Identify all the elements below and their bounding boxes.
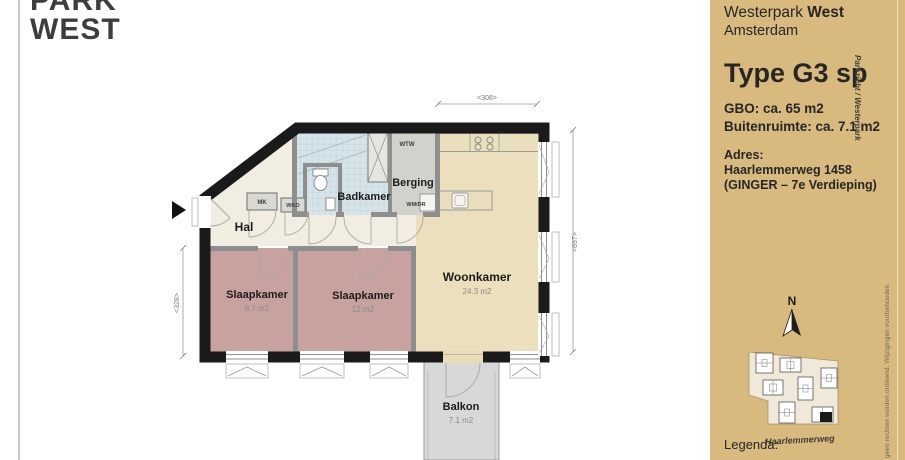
toilet-tank [313, 169, 328, 176]
label-woonkamer: Woonkamer [443, 270, 512, 284]
site-map: N Haarlemmerweg [735, 290, 865, 450]
site-building-highlight [820, 412, 832, 422]
label-badkamer: Badkamer [337, 191, 391, 203]
gbo-area: GBO: ca. 65 m2 [724, 101, 824, 116]
sidebar-edge-line [897, 0, 898, 460]
north-arrow-icon [783, 309, 801, 336]
washbasin [326, 198, 335, 210]
compass-n-label: N [788, 294, 797, 308]
apartment-type-title: Type G3 sp [724, 58, 868, 89]
area-slaapkamer-1: 8.7 m2 [245, 304, 270, 313]
area-balkon: 7.1 m2 [449, 416, 474, 425]
balcony-door-opening [443, 351, 483, 363]
address-street: Haarlemmerweg 1458 [724, 163, 852, 177]
address-label: Adres: [724, 148, 764, 162]
dimension-top: <308> [477, 95, 497, 102]
area-slaapkamer-2: 12 m2 [352, 305, 375, 314]
room-slaapkamer-2 [298, 248, 411, 357]
floorplan-drawing: <308> <697> <328> Hal Badkamer Berging S… [0, 0, 710, 460]
shaft-hatch [368, 131, 388, 182]
area-woonkamer: 24.3 m2 [463, 287, 492, 296]
disclaimer-text: geen rechten worden ontleend. Wijziginge… [884, 282, 891, 458]
project-city: Amsterdam [724, 23, 798, 39]
label-slaapkamer-2: Slaapkamer [332, 290, 394, 302]
label-mk: MK [257, 200, 267, 206]
label-berging: Berging [392, 177, 434, 189]
label-balkon: Balkon [443, 401, 480, 413]
map-side-label: Parkzicht / Westerpark [853, 55, 862, 141]
legend-label: Legenda: [724, 437, 778, 452]
label-hal: Hal [235, 220, 254, 234]
label-slaapkamer-1: Slaapkamer [226, 289, 288, 301]
address-detail: (GINGER – 7e Verdieping) [724, 178, 877, 192]
label-wtw: WTW [400, 142, 415, 148]
kitchen-island [438, 191, 492, 210]
label-wko: WKO [286, 203, 300, 209]
room-slaapkamer-1 [207, 248, 293, 357]
label-wmdr: WM/DR [406, 202, 425, 208]
dimension-right: <697> [572, 232, 579, 252]
project-title: Westerpark West [724, 4, 844, 22]
dimension-left: <328> [174, 293, 181, 313]
entrance-arrow-icon [172, 201, 186, 219]
kitchen-counter [437, 134, 541, 152]
toilet-bowl [314, 176, 327, 191]
info-sidebar: Westerpark West Amsterdam Type G3 sp GBO… [710, 0, 905, 460]
